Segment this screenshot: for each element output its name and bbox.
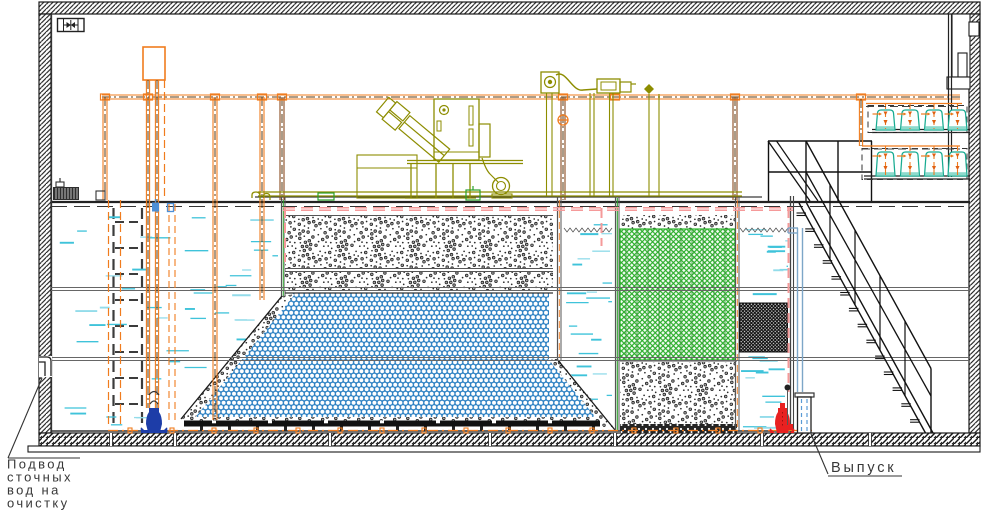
svg-text:Выпуск: Выпуск <box>831 460 896 476</box>
svg-text:очистку: очистку <box>7 496 70 511</box>
